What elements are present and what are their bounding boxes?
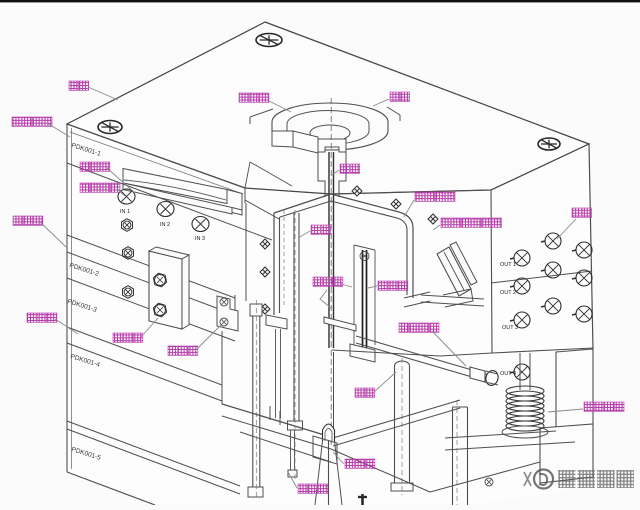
svg-text:OUT 1: OUT 1 — [500, 262, 516, 268]
svg-text:IN 2: IN 2 — [160, 222, 170, 228]
svg-text:IN 3: IN 3 — [195, 236, 205, 242]
svg-text:OUT 4: OUT 4 — [500, 371, 516, 377]
svg-text:OUT 2: OUT 2 — [500, 290, 516, 296]
svg-text:IN 1: IN 1 — [120, 209, 130, 215]
svg-text:OUT 3: OUT 3 — [502, 325, 518, 331]
